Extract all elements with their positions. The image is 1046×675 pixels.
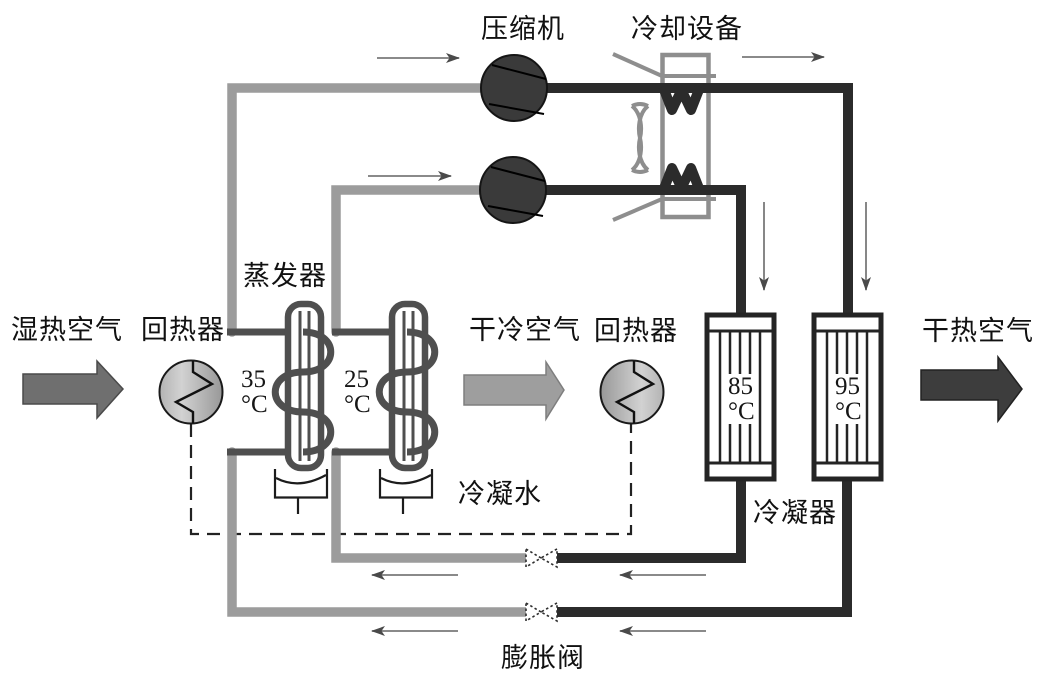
dry-cold-air-label: 干冷空气 <box>469 308 581 347</box>
temp-unit: °C <box>728 399 755 424</box>
fan-icon <box>632 104 648 172</box>
dry-hot-air-label: 干热空气 <box>922 309 1034 348</box>
condenser1-temperature: 85 °C <box>726 374 757 424</box>
dry-cold-air-arrow <box>464 362 564 419</box>
drip-pan1-water <box>276 475 326 483</box>
condenser-label: 冷凝器 <box>753 491 837 530</box>
cooling-device <box>613 54 716 220</box>
evaporator-label: 蒸发器 <box>243 254 327 293</box>
temp-value: 35 <box>241 367 268 392</box>
compressor-label: 压缩机 <box>481 7 565 46</box>
temp-unit: °C <box>344 392 371 417</box>
compressor2-icon <box>480 157 546 223</box>
condenser2-outlet-pipe <box>557 463 847 612</box>
evaporator1-temperature: 35 °C <box>241 367 268 417</box>
heat-pump-drying-diagram: 压缩机 冷却设备 湿热空气 回热器 蒸发器 干冷空气 回热器 干热空气 冷凝水 … <box>0 0 1046 675</box>
regenerator2-icon <box>601 361 664 424</box>
dry-hot-air-arrow <box>921 357 1022 421</box>
temp-value: 25 <box>344 367 371 392</box>
condenser2-temperature: 95 °C <box>833 374 864 424</box>
cooling-device-label: 冷却设备 <box>631 7 743 46</box>
temp-unit: °C <box>835 399 862 424</box>
temp-unit: °C <box>241 392 268 417</box>
suction-pipe-circuit1 <box>232 88 482 332</box>
temp-value: 95 <box>835 374 862 399</box>
regenerator-left-label: 回热器 <box>141 308 225 347</box>
cooling-coil-bottom <box>663 168 700 191</box>
compressor-group <box>480 55 547 223</box>
drip-pan2-water <box>381 475 431 483</box>
evaporator2-temperature: 25 °C <box>344 367 371 417</box>
expansion-valve2-icon <box>526 603 557 621</box>
regenerator1-icon <box>160 361 223 424</box>
compressor1-icon <box>481 55 547 121</box>
regenerator-right-label: 回热器 <box>594 309 678 348</box>
humid-hot-air-arrow <box>23 361 123 418</box>
expansion-valve1-icon <box>526 549 557 567</box>
humid-hot-air-label: 湿热空气 <box>11 308 123 347</box>
temp-value: 85 <box>728 374 755 399</box>
cooling-coil-top <box>663 87 700 110</box>
condensate-water-label: 冷凝水 <box>458 472 542 511</box>
discharge-pipe-circuit1 <box>547 88 848 331</box>
expansion-valve-label: 膨胀阀 <box>501 636 585 675</box>
